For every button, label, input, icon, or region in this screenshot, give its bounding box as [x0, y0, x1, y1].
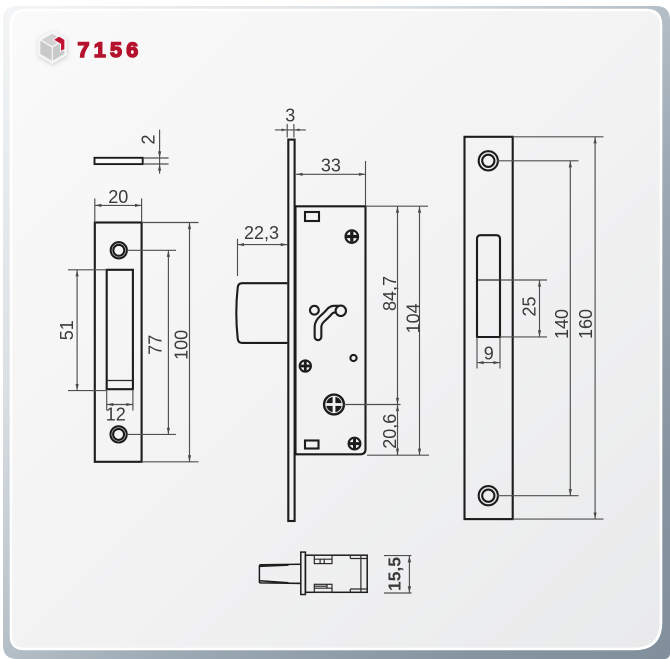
svg-text:20,6: 20,6: [380, 414, 400, 449]
svg-text:140: 140: [552, 309, 572, 339]
svg-text:22,3: 22,3: [244, 223, 279, 243]
svg-text:77: 77: [145, 335, 165, 355]
svg-text:104: 104: [403, 303, 423, 333]
svg-text:160: 160: [576, 309, 596, 339]
svg-text:84,7: 84,7: [380, 276, 400, 311]
svg-text:15,5: 15,5: [385, 557, 405, 591]
svg-text:3: 3: [285, 106, 295, 126]
svg-text:7156: 7156: [78, 38, 143, 62]
svg-text:12: 12: [106, 405, 126, 425]
svg-text:9: 9: [484, 344, 494, 364]
svg-text:51: 51: [57, 320, 77, 340]
svg-text:100: 100: [171, 330, 191, 360]
svg-text:25: 25: [519, 296, 539, 316]
svg-text:20: 20: [108, 187, 128, 207]
svg-text:33: 33: [321, 155, 341, 175]
svg-text:2: 2: [139, 134, 159, 144]
